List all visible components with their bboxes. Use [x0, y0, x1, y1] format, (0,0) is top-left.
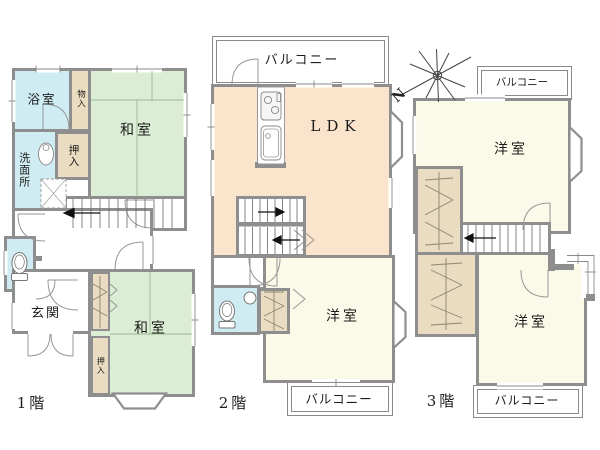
washroom-label: 洗面所	[18, 152, 30, 188]
bay-window-western-2f	[394, 301, 406, 348]
closet-strip-1f	[91, 272, 110, 331]
floor-plan: N 浴室 物入 和室 押入 洗面所 玄関 和室 押入 1階 バルコニー LDK …	[0, 0, 600, 450]
balcony-2f-north-label: バルコニー	[265, 54, 340, 68]
closet-2f	[258, 288, 290, 334]
stairs-2f	[236, 196, 306, 257]
floor1-label: 1階	[17, 396, 48, 412]
storage-label: 物入	[76, 90, 85, 109]
room-entrance-1f	[12, 269, 91, 334]
closet-upper-label: 押入	[67, 145, 78, 168]
closet-b-3f	[415, 252, 478, 337]
bay-window-ldk-2f	[391, 111, 403, 168]
western-2f-label: 洋室	[326, 310, 360, 325]
stairs-3f	[460, 222, 551, 255]
balcony-2f-south-label: バルコニー	[305, 392, 372, 405]
balcony-3f-south-label: バルコニー	[495, 395, 560, 408]
tatami-upper-label: 和室	[120, 124, 154, 139]
western-lower-3f-label: 洋室	[514, 316, 548, 331]
bathroom-label: 浴室	[27, 92, 56, 105]
closet-lower-label: 押入	[96, 357, 104, 375]
tatami-lower-label: 和室	[134, 322, 168, 337]
western-upper-3f-label: 洋室	[494, 143, 528, 158]
floor3-label: 3階	[427, 394, 458, 410]
room-toilet-2f	[211, 285, 260, 335]
closet-a-3f	[415, 166, 463, 255]
floor2-label: 2階	[219, 396, 250, 412]
entrance-label: 玄関	[31, 307, 61, 321]
ldk-label: LDK	[310, 119, 361, 135]
compass-north-label: N	[389, 85, 409, 106]
bay-window-3f	[570, 127, 582, 182]
balcony-3f-north-label: バルコニー	[496, 77, 548, 88]
